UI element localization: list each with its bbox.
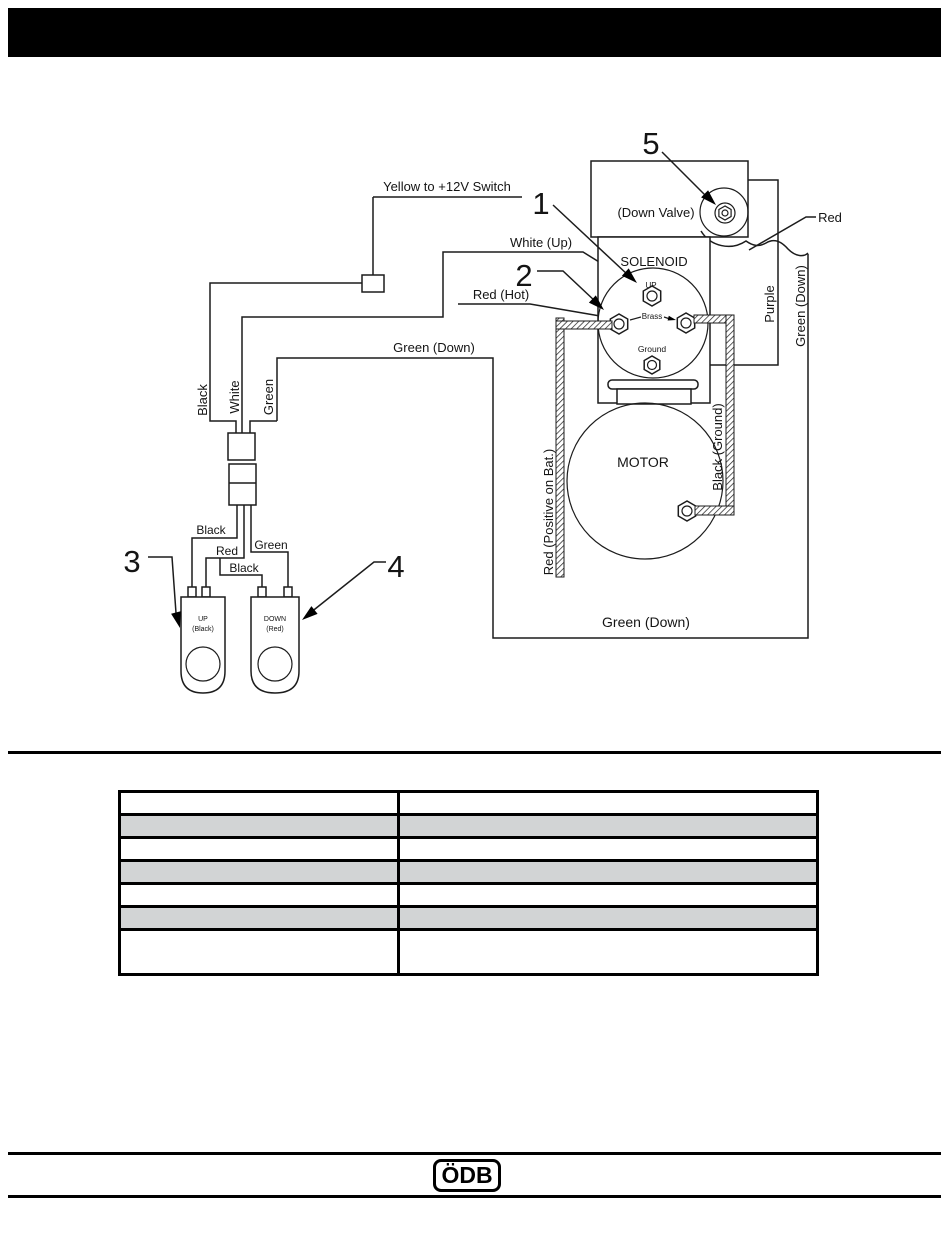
- green-down-label: Green (Down): [393, 340, 475, 355]
- table-cell: [120, 907, 399, 930]
- footer-rule-bottom: [8, 1195, 941, 1198]
- connector-stack: [228, 433, 256, 505]
- down-valve-box: [591, 161, 748, 237]
- table-cell: [399, 792, 818, 815]
- motor-label: MOTOR: [617, 454, 669, 470]
- down-button-label: DOWN: [264, 616, 286, 623]
- callout-3: 3: [123, 544, 180, 628]
- table-cell: [120, 930, 399, 975]
- wire-white: White White (Up): [227, 235, 646, 433]
- motor: MOTOR: [567, 403, 723, 559]
- ground-terminal-label: Ground: [638, 344, 667, 354]
- black-wire-label: Black: [195, 384, 210, 416]
- table-cell: [399, 815, 818, 838]
- callout-3-number: 3: [123, 544, 140, 579]
- down-button-sublabel: (Red): [266, 626, 284, 633]
- button-harness: Black Red Green Black: [188, 505, 292, 597]
- green-wire-label: Green: [261, 379, 276, 415]
- table-cell: [399, 884, 818, 907]
- wiring-diagram: Yellow to +12V Switch Black White White …: [0, 0, 950, 760]
- up-button-sublabel: (Black): [192, 626, 214, 633]
- up-button-pin-1: [188, 587, 196, 597]
- yellow-switch-label: Yellow to +12V Switch: [383, 179, 511, 194]
- callout-1-number: 1: [532, 186, 549, 221]
- down-valve: (Down Valve): [591, 161, 748, 237]
- black-ground-label: Black (Ground): [710, 403, 725, 490]
- connector-upper: [228, 433, 255, 460]
- brass-terminal-label: Brass: [642, 312, 662, 321]
- solenoid-base-plate: [608, 380, 698, 389]
- solenoid-label: SOLENOID: [620, 254, 687, 269]
- brass-terminal-left-hex: [610, 314, 627, 334]
- table-row: [120, 792, 818, 815]
- harness-green-label: Green: [254, 538, 287, 552]
- table-cell: [399, 861, 818, 884]
- down-button-pin-2: [284, 587, 292, 597]
- up-button-pin-2: [202, 587, 210, 597]
- ground-terminal-hex: [644, 356, 660, 374]
- table-cell: [120, 838, 399, 861]
- table-cell: [120, 815, 399, 838]
- down-valve-label: (Down Valve): [617, 205, 694, 220]
- red-wire-label: Red: [818, 210, 842, 225]
- table-cell: [399, 907, 818, 930]
- odb-logo: ÖDB: [433, 1159, 501, 1192]
- odb-logo-text: ÖDB: [441, 1162, 492, 1189]
- down-button: DOWN (Red): [251, 597, 299, 693]
- callout-4-number: 4: [387, 549, 404, 584]
- green-down-bottom-label: Green (Down): [602, 614, 690, 630]
- harness-black-jumper-label: Black: [229, 561, 259, 575]
- yellow-switch-wire: Yellow to +12V Switch: [362, 179, 522, 292]
- callout-2-number: 2: [515, 258, 532, 293]
- table-row: [120, 838, 818, 861]
- brass-terminal-right-hex: [677, 313, 694, 333]
- callout-5-number: 5: [642, 126, 659, 161]
- callout-2: 2: [515, 258, 604, 310]
- table-row: [120, 861, 818, 884]
- up-button: UP (Black): [181, 597, 225, 693]
- table-cell: [399, 930, 818, 975]
- table-row: [120, 930, 818, 975]
- green-down-vertical-label: Green (Down): [793, 265, 808, 347]
- table-cell: [120, 884, 399, 907]
- table-row: [120, 907, 818, 930]
- callout-4: 4: [302, 549, 405, 620]
- connector-lower: [229, 464, 256, 505]
- solenoid-base-block: [617, 389, 691, 404]
- table-cell: [120, 861, 399, 884]
- table-row: [120, 884, 818, 907]
- callout-3-arrow: [171, 611, 181, 628]
- section-divider: [8, 751, 941, 754]
- red-positive-label: Red (Positive on Bat.): [541, 449, 556, 575]
- document-page: Yellow to +12V Switch Black White White …: [0, 0, 950, 1241]
- white-up-label: White (Up): [510, 235, 572, 250]
- up-terminal-hex: [643, 286, 660, 306]
- switch-junction-box: [362, 275, 384, 292]
- down-button-pin-1: [258, 587, 266, 597]
- harness-black-label: Black: [196, 523, 226, 537]
- purple-wire-label: Purple: [762, 285, 777, 323]
- up-button-label: UP: [198, 616, 208, 623]
- table-cell: [399, 838, 818, 861]
- table-cell: [120, 792, 399, 815]
- spec-table: [118, 790, 819, 976]
- harness-red-label: Red: [216, 544, 238, 558]
- table-row: [120, 815, 818, 838]
- motor-terminal-hex: [678, 501, 695, 521]
- footer-rule-top: [8, 1152, 941, 1155]
- motor-circle: [567, 403, 723, 559]
- white-wire-label: White: [227, 380, 242, 413]
